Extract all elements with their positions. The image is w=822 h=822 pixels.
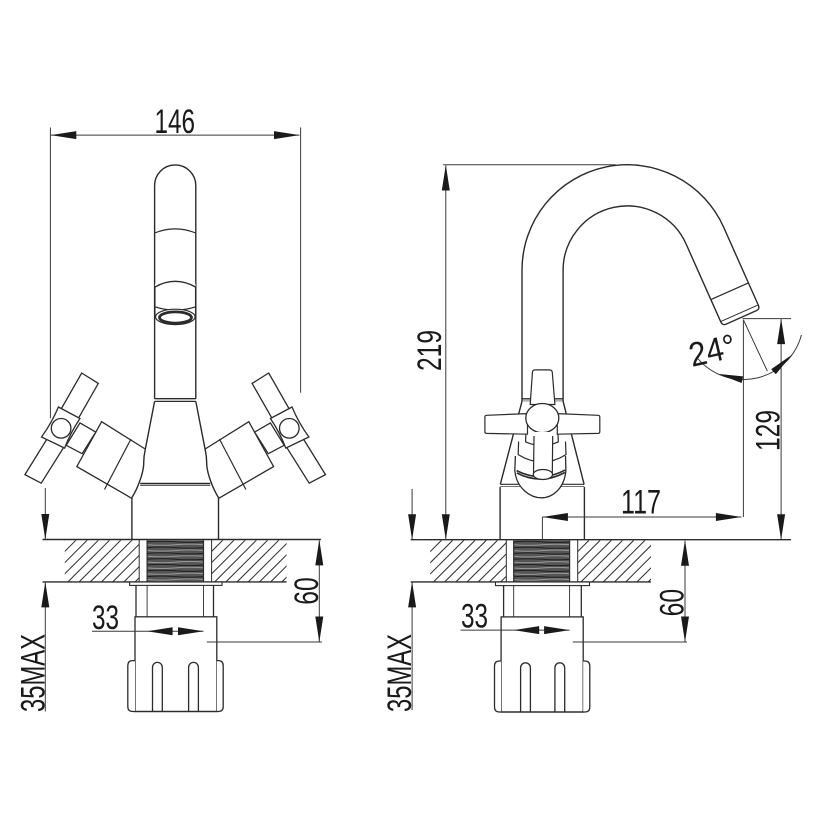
svg-text:60: 60	[653, 589, 691, 617]
svg-text:35MAX: 35MAX	[15, 634, 53, 712]
svg-text:219: 219	[411, 330, 449, 371]
svg-text:33: 33	[92, 599, 119, 637]
svg-text:146: 146	[155, 103, 196, 141]
svg-text:33: 33	[461, 598, 488, 636]
svg-text:35MAX: 35MAX	[381, 634, 419, 712]
svg-text:60: 60	[288, 577, 326, 605]
svg-text:117: 117	[621, 484, 661, 522]
svg-text:129: 129	[749, 410, 787, 451]
